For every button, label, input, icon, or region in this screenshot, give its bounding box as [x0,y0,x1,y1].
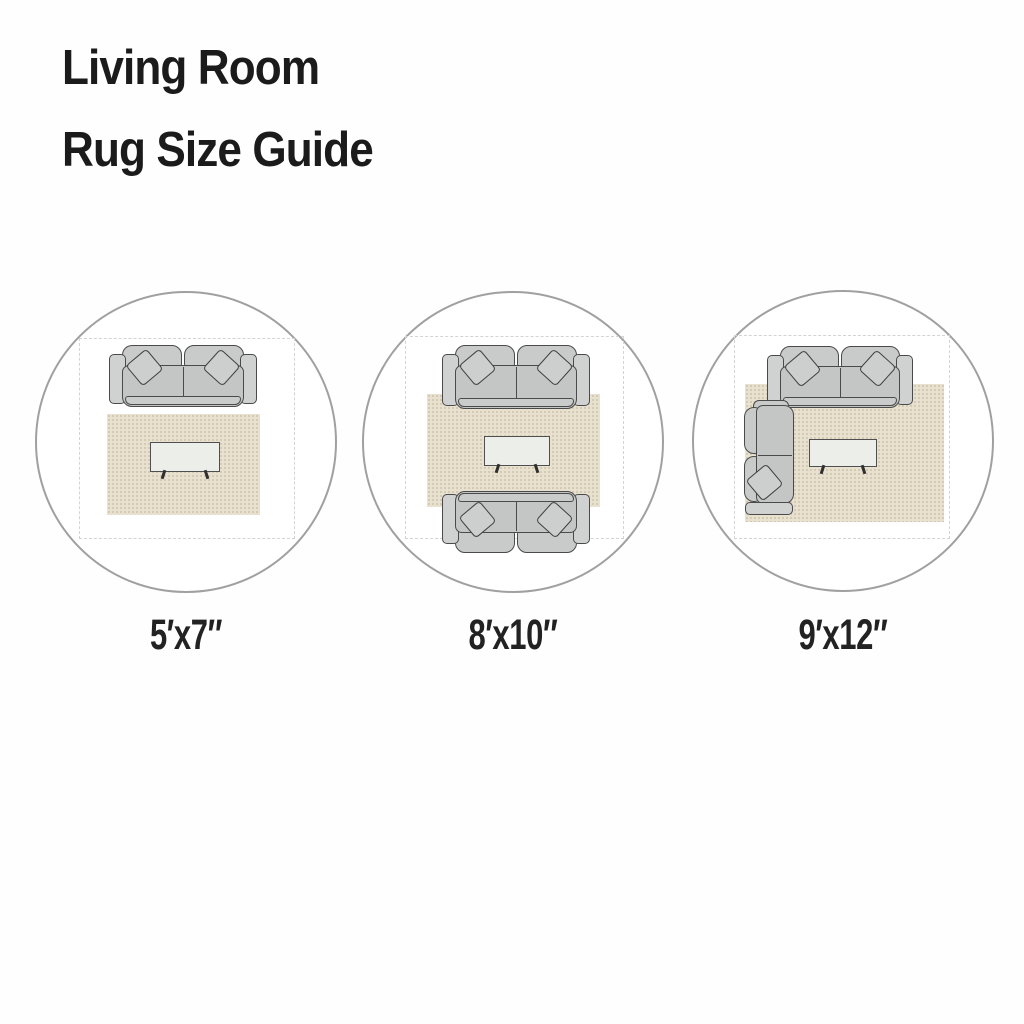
coffee-table [809,439,877,467]
diagram-circle-9x12 [692,290,994,592]
size-label-9x12: 9′x12″ [734,611,951,660]
sofa-arm-bottom [745,502,793,515]
size-label-5x7: 5′x7″ [77,611,294,660]
sectional-sofa-main [767,346,913,408]
sofa [109,345,257,407]
sofa-bottom [442,491,590,553]
diagram-circle-5x7 [35,291,337,593]
size-label-8x10: 8′x10″ [404,611,621,660]
rug-size-guide-infographic: Living Room Rug Size Guide [0,0,1024,1024]
sofa-top [442,345,590,409]
coffee-table [484,436,550,466]
sectional-sofa-chaise [744,405,794,515]
page-title: Living Room Rug Size Guide [62,27,373,191]
title-line-2: Rug Size Guide [62,109,373,191]
title-line-1: Living Room [62,27,373,109]
coffee-table [150,442,220,472]
diagram-circle-8x10 [362,291,664,593]
